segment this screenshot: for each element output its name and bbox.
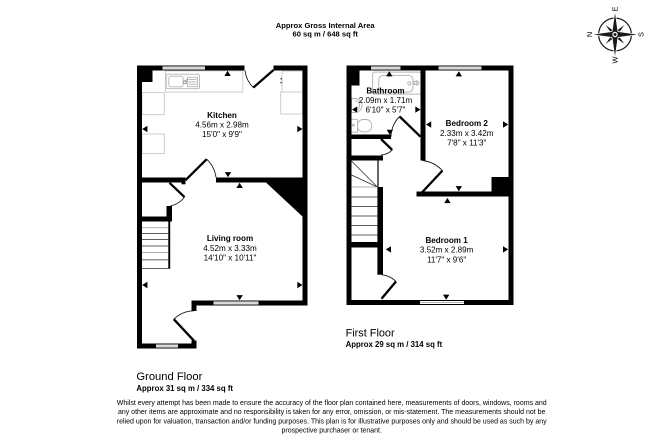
svg-text:15'0" x 9'9": 15'0" x 9'9" <box>202 130 242 139</box>
svg-text:Living room: Living room <box>207 234 253 243</box>
svg-text:Bedroom 1: Bedroom 1 <box>425 236 468 245</box>
svg-text:relied upon for valuation, tra: relied upon for valuation, transaction a… <box>117 418 547 425</box>
svg-text:4.52m x 3.33m: 4.52m x 3.33m <box>203 244 257 253</box>
svg-text:First Floor: First Floor <box>346 328 395 340</box>
svg-text:W: W <box>611 56 620 63</box>
svg-text:S: S <box>637 32 646 37</box>
svg-text:2.09m x 1.71m: 2.09m x 1.71m <box>359 96 413 105</box>
svg-text:14'10" x 10'11": 14'10" x 10'11" <box>204 253 257 262</box>
svg-text:Kitchen: Kitchen <box>207 111 237 120</box>
svg-text:Bathroom: Bathroom <box>366 86 404 95</box>
svg-text:Whilst every attempt has been: Whilst every attempt has been made to en… <box>117 400 547 407</box>
svg-text:60 sq m / 648 sq ft: 60 sq m / 648 sq ft <box>292 30 358 39</box>
svg-text:11'7" x 9'6": 11'7" x 9'6" <box>427 255 466 264</box>
svg-text:Approx 29 sq m / 314 sq ft: Approx 29 sq m / 314 sq ft <box>346 340 443 349</box>
svg-text:4.56m x 2.98m: 4.56m x 2.98m <box>195 120 249 129</box>
svg-text:any other items are approximat: any other items are approximate and no r… <box>118 409 546 416</box>
svg-text:6'10" x 5'7": 6'10" x 5'7" <box>366 106 406 115</box>
svg-text:2.33m x 3.42m: 2.33m x 3.42m <box>440 129 494 138</box>
svg-text:7'8" x 11'3": 7'8" x 11'3" <box>447 138 486 147</box>
svg-text:E: E <box>611 6 620 11</box>
svg-text:Approx 31 sq m / 334 sq ft: Approx 31 sq m / 334 sq ft <box>136 384 233 393</box>
svg-text:prospective purchaser or tenan: prospective purchaser or tenant. <box>282 428 382 435</box>
svg-text:Ground Floor: Ground Floor <box>136 371 202 383</box>
svg-text:3.52m x 2.89m: 3.52m x 2.89m <box>420 246 474 255</box>
svg-text:N: N <box>585 32 594 37</box>
svg-text:Bedroom 2: Bedroom 2 <box>446 119 489 128</box>
